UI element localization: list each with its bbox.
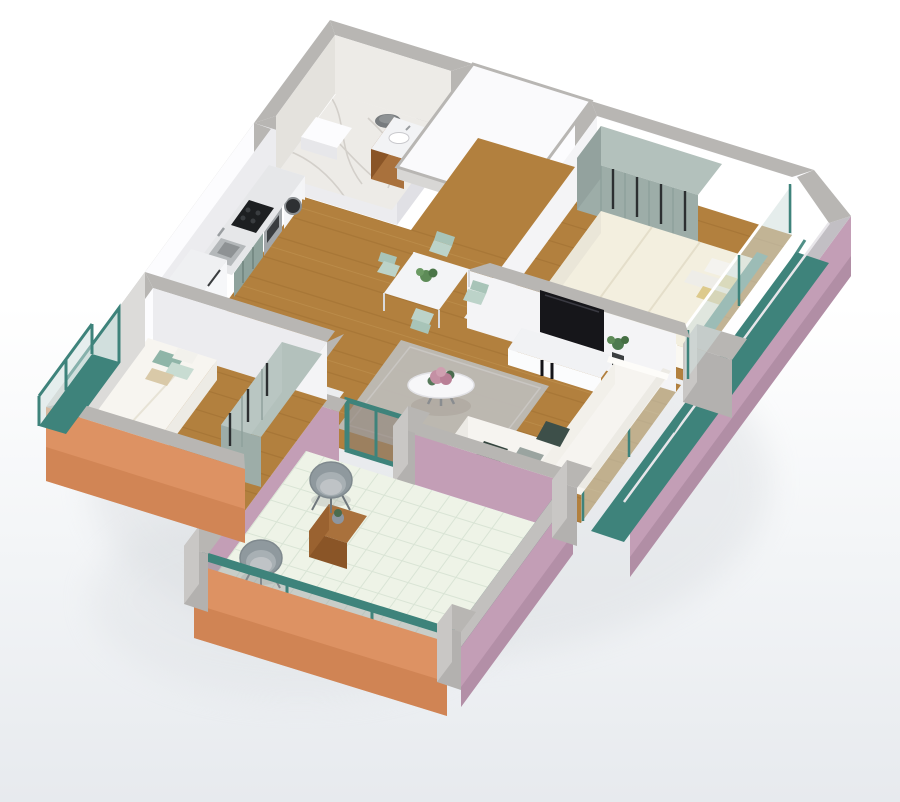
washer-door (285, 198, 301, 214)
floorplan-svg (0, 0, 900, 802)
floorplan-render (0, 0, 900, 802)
balcony-north-cap (797, 170, 851, 223)
